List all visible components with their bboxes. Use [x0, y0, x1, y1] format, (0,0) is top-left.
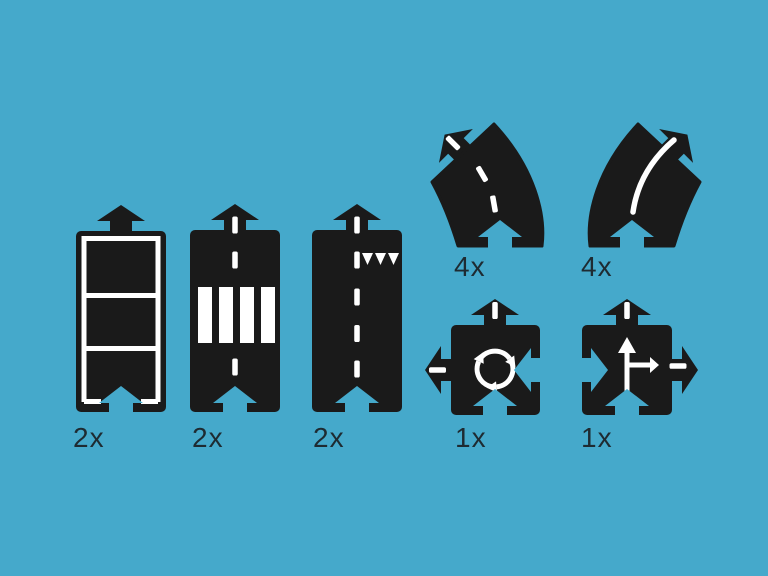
piece-curve-right-solid	[589, 118, 704, 250]
piece-straight-zebra-crossing	[190, 204, 280, 416]
road-set-contents-diagram: 2x 2x 2x 4x 4x 1x 1x	[0, 0, 768, 576]
road-pieces-illustration	[0, 0, 768, 576]
give-way-teeth-icon	[362, 253, 399, 265]
arrow-tab-connector	[669, 346, 698, 394]
count-label-curve-right: 4x	[581, 253, 613, 281]
arrow-tab-connector	[97, 205, 145, 234]
count-label-roundabout: 1x	[455, 424, 487, 452]
piece-t-junction	[578, 299, 698, 419]
piece-straight-dashed-give-way	[312, 204, 402, 416]
piece-curve-left-dashed	[428, 118, 543, 250]
piece-roundabout	[425, 299, 544, 419]
count-label-t-junction: 1x	[581, 424, 613, 452]
piece-straight-white-border	[76, 205, 166, 416]
count-label-zebra-crossing: 2x	[192, 424, 224, 452]
count-label-curve-left: 4x	[454, 253, 486, 281]
count-label-straight-border: 2x	[73, 424, 105, 452]
count-label-dashed-give-way: 2x	[313, 424, 345, 452]
